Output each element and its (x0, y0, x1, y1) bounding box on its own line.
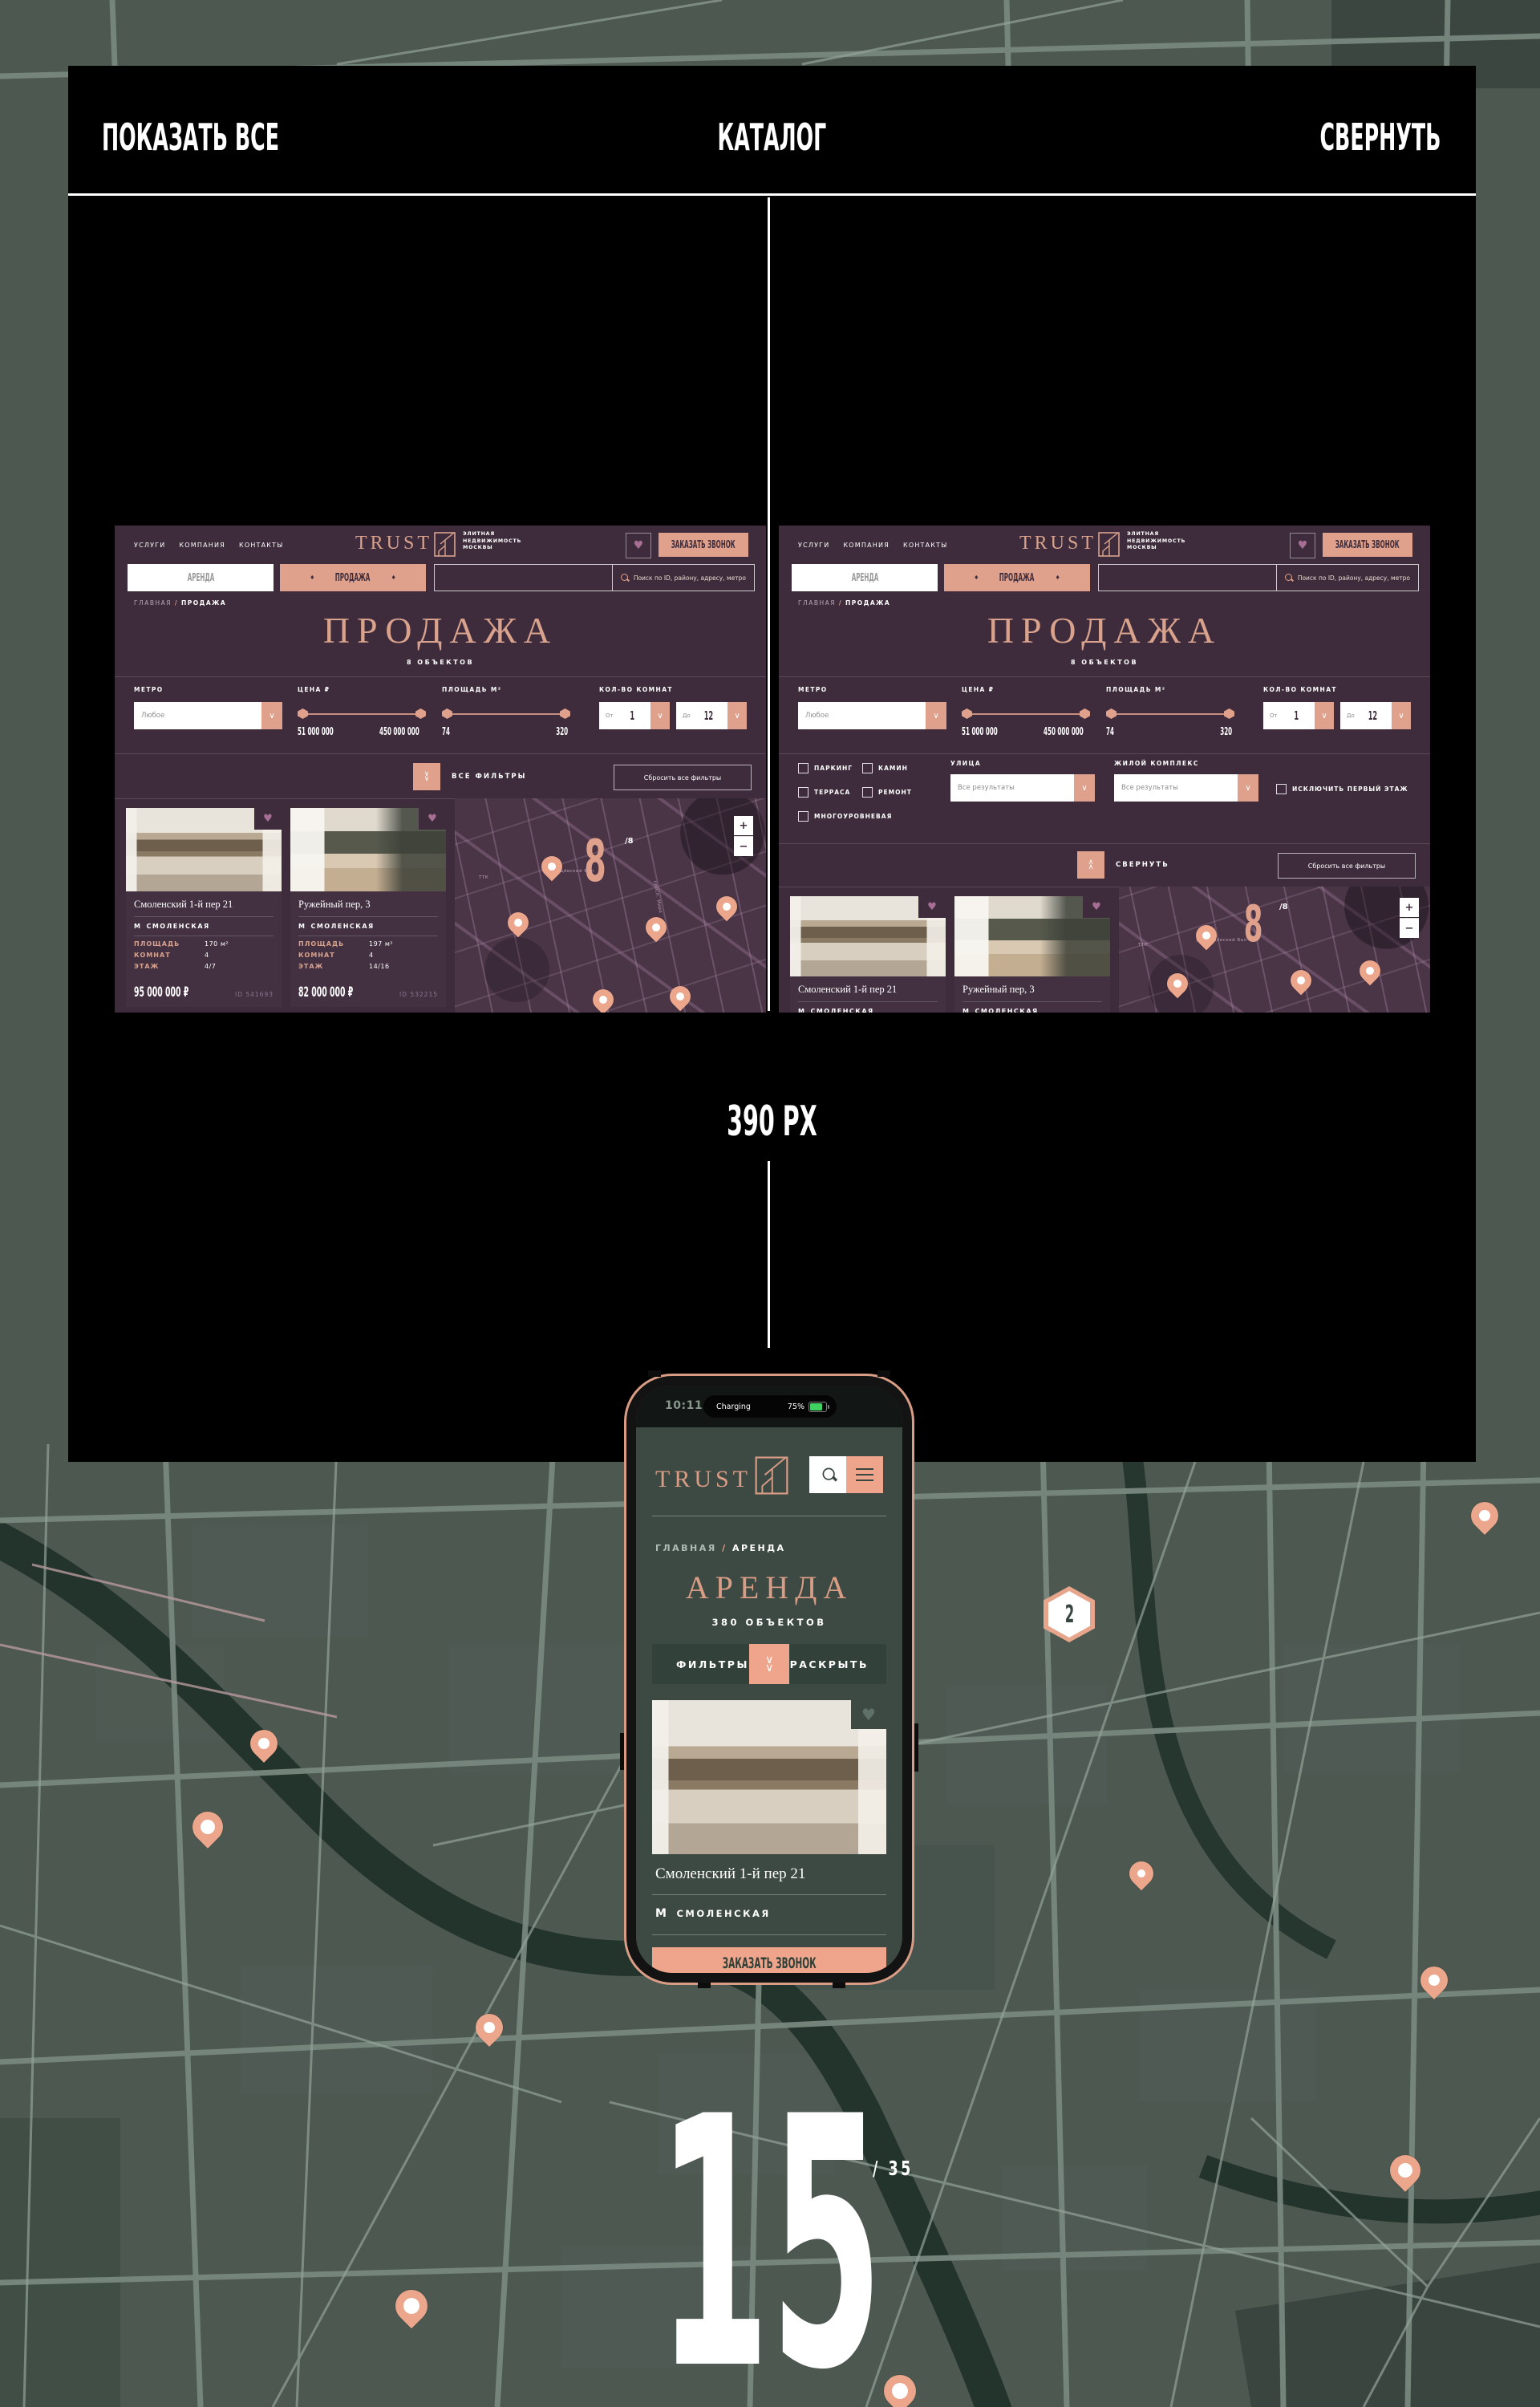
diamond-icon: ♦ (1056, 574, 1060, 581)
slider-handle[interactable] (1080, 708, 1090, 719)
rooms-from-stepper[interactable]: От 1 ∨ (1263, 702, 1334, 729)
desktop-screenshot-expanded-filters: УСЛУГИ КОМПАНИЯ КОНТАКТЫ TRUST ЭЛИТНАЯНЕ… (779, 526, 1430, 1013)
map-results-total: /8 (625, 837, 634, 846)
page-title: ПРОДАЖА (115, 609, 766, 651)
map-pin[interactable] (504, 908, 533, 938)
breadcrumb: ГЛАВНАЯ / ПРОДАЖА (134, 599, 226, 607)
property-photo: ♥ (954, 896, 1110, 976)
nav-contacts[interactable]: КОНТАКТЫ (903, 542, 948, 549)
map-pin[interactable] (712, 892, 742, 922)
property-id: ID 541693 (235, 991, 274, 998)
map-pin[interactable] (1192, 921, 1222, 951)
area-min: 74 (1106, 726, 1121, 738)
metro-select[interactable]: Любое ∨ (798, 702, 946, 729)
chevron-down-icon[interactable]: ∨ (650, 702, 670, 729)
cluster-count: 2 (1064, 1601, 1073, 1629)
property-card[interactable]: ♥ Ружейный пер, 3 М СМОЛЕНСКАЯ ПЛОЩАДЬ19… (290, 808, 446, 1007)
antenna-band (698, 1982, 711, 1988)
filter-area-label: ПЛОЩАДЬ М² (1106, 686, 1165, 693)
favorite-toggle[interactable]: ♥ (1083, 896, 1110, 918)
area-max: 320 (546, 726, 568, 738)
map-zoom-out-button[interactable]: − (734, 836, 753, 856)
breadcrumb-home[interactable]: ГЛАВНАЯ (798, 599, 836, 607)
checkbox-exclude-first-floor[interactable]: ИСКЛЮЧИТЬ ПЕРВЫЙ ЭТАЖ (1276, 784, 1408, 794)
metro-icon: М (134, 923, 141, 930)
chevron-down-icon[interactable]: ∨ (1315, 702, 1334, 729)
search-icon (621, 574, 629, 582)
expand-label[interactable]: РАСКРЫТЬ (790, 1658, 869, 1670)
map-pin[interactable] (589, 985, 618, 1013)
filter-rooms-label: КОЛ-ВО КОМНАТ (1263, 686, 1337, 693)
mobile-objects-count: 380 ОБЪЕКТОВ (636, 1617, 902, 1628)
search-placeholder: Поиск по ID, району, адресу, метро (1298, 574, 1418, 582)
map-pin[interactable] (1163, 969, 1193, 999)
price-max: 450 000 000 (1044, 726, 1116, 738)
complex-select[interactable]: Все результаты ∨ (1114, 774, 1258, 802)
center-divider-line (768, 197, 770, 1011)
metro-icon: М (798, 1008, 805, 1013)
nav-company[interactable]: КОМПАНИЯ (179, 542, 225, 549)
property-photo: ♥ (126, 808, 282, 891)
slide-number: 15 (0, 2104, 1540, 2387)
tab-arenda[interactable]: АРЕНДА (128, 564, 274, 591)
checkbox-terrace[interactable]: ТЕРРАСА (798, 787, 850, 798)
checkbox-renovation[interactable]: РЕМОНТ (862, 787, 912, 798)
property-photo: ♥ (290, 808, 446, 891)
breadcrumb-slash: / (175, 599, 178, 607)
map-zoom-in-button[interactable]: + (1400, 898, 1419, 917)
chevron-down-icon[interactable]: ∨ (1074, 774, 1095, 802)
tab-prodazha[interactable]: ♦ ПРОДАЖА ♦ (280, 564, 426, 591)
tab-prodazha[interactable]: ♦ ПРОДАЖА ♦ (944, 564, 1090, 591)
slider-handle[interactable] (560, 708, 570, 719)
nav-contacts[interactable]: КОНТАКТЫ (239, 542, 284, 549)
logo-mark-icon (755, 1456, 788, 1495)
reset-filters-button[interactable]: Сбросить все фильтры (614, 765, 752, 790)
area-min: 74 (442, 726, 456, 738)
metro-row: М СМОЛЕНСКАЯ (298, 923, 438, 930)
collapse-filters-button[interactable]: ∧∧ (1077, 851, 1104, 879)
search-text-area[interactable] (435, 565, 612, 591)
mobile-page-title: АРЕНДА (636, 1569, 902, 1606)
price-max: 450 000 000 (379, 726, 452, 738)
battery-percent: 75% (788, 1402, 804, 1411)
search-divider (1276, 565, 1277, 591)
phone-mockup: 10:11 Charging 75% TRUST ГЛАВНАЯ / АРЕН (624, 1374, 914, 1985)
breadcrumb-current: АРЕНДА (732, 1543, 786, 1553)
site-tagline: ЭЛИТНАЯНЕДВИЖИМОСТЬМОСКВЫ (1127, 531, 1185, 552)
price-range-slider[interactable] (962, 708, 1090, 719)
breadcrumb-current: ПРОДАЖА (181, 599, 226, 607)
property-title[interactable]: Ружейный пер, 3 (962, 984, 1102, 996)
search-input[interactable]: Поиск по ID, району, адресу, метро (434, 564, 755, 591)
map-results-count: 8 (1236, 899, 1270, 949)
tab-arenda[interactable]: АРЕНДА (792, 564, 938, 591)
chevron-down-icon[interactable]: ∨ (261, 702, 282, 729)
property-title[interactable]: Смоленский 1-й пер 21 (798, 984, 938, 996)
metro-icon: М (962, 1008, 970, 1013)
results-map[interactable]: ТТК ул. Сущёвский Вал 8 /8 + − (1119, 887, 1430, 1013)
property-photo: ♥ (790, 896, 946, 976)
filter-complex-label: ЖИЛОЙ КОМПЛЕКС (1114, 760, 1199, 767)
map-pin[interactable] (642, 913, 671, 943)
favorite-toggle[interactable]: ♥ (254, 808, 282, 830)
property-card[interactable]: ♥ Смоленский 1-й пер 21 М СМОЛЕНСКАЯ ПЛО… (126, 808, 282, 1007)
breadcrumb-slash: / (722, 1543, 727, 1553)
presentation-panel: ПОКАЗАТЬ ВСЕ КАТАЛОГ СВЕРНУТЬ 390 PX УСЛ… (68, 66, 1476, 1462)
mobile-breadcrumb: ГЛАВНАЯ / АРЕНДА (655, 1543, 786, 1553)
mobile-logo[interactable]: TRUST (655, 1466, 752, 1493)
slider-handle[interactable] (298, 708, 308, 719)
map-pin[interactable] (666, 982, 695, 1012)
map-pin[interactable] (1287, 966, 1316, 996)
slide-total: / 35 (873, 2157, 931, 2180)
slider-handle[interactable] (1106, 708, 1116, 719)
price-min: 51 000 000 (962, 726, 1027, 738)
battery-icon (808, 1402, 827, 1412)
chevron-down-icon[interactable]: ∨ (727, 702, 747, 729)
diamond-icon: ♦ (974, 574, 979, 581)
expand-filters-button[interactable]: ∨∨ (413, 763, 440, 790)
heart-icon: ♥ (428, 813, 437, 825)
search-placeholder: Поиск по ID, району, адресу, метро (634, 574, 754, 582)
rooms-to-stepper[interactable]: До 12 ∨ (1340, 702, 1411, 729)
heart-icon: ♥ (634, 539, 644, 552)
all-filters-label[interactable]: ВСЕ ФИЛЬТРЫ (452, 773, 526, 781)
map-pin[interactable] (537, 852, 567, 882)
favorites-button[interactable]: ♥ (626, 533, 651, 558)
breadcrumb-home[interactable]: ГЛАВНАЯ (655, 1543, 717, 1553)
expand-filters-button[interactable]: ∨∨ (749, 1644, 789, 1684)
area-range-slider[interactable] (442, 708, 570, 719)
metro-row: М СМОЛЕНСКАЯ (134, 923, 274, 930)
heart-icon: ♥ (1298, 539, 1308, 552)
search-text-area[interactable] (1099, 565, 1276, 591)
breadcrumb: ГЛАВНАЯ / ПРОДАЖА (798, 599, 890, 607)
metro-row: М СМОЛЕНСКАЯ (962, 1008, 1102, 1013)
breadcrumb-current: ПРОДАЖА (845, 599, 890, 607)
collapse-filters-label[interactable]: СВЕРНУТЬ (1116, 861, 1169, 869)
metro-row: М СМОЛЕНСКАЯ (798, 1008, 938, 1013)
heart-icon: ♥ (861, 1705, 876, 1724)
rooms-to-stepper[interactable]: До 12 ∨ (676, 702, 747, 729)
divider (652, 1934, 886, 1935)
objects-count: 8 ОБЪЕКТОВ (779, 659, 1430, 666)
page: 2 ПОКАЗАТЬ ВСЕ КАТАЛОГ СВЕРНУТЬ 390 PX У… (0, 0, 1540, 2407)
mobile-call-button[interactable]: ЗАКАЗАТЬ ЗВОНОК (652, 1947, 886, 1973)
request-call-button[interactable]: ЗАКАЗАТЬ ЗВОНОК (1323, 533, 1412, 557)
map-results-total: /8 (1279, 903, 1288, 911)
property-id: ID 532215 (399, 991, 438, 998)
filter-area-label: ПЛОЩАДЬ М² (442, 686, 501, 693)
site-nav: УСЛУГИ КОМПАНИЯ КОНТАКТЫ (134, 542, 298, 549)
mobile-property-photo[interactable]: ♥ (652, 1700, 886, 1854)
checkbox-multilevel[interactable]: МНОГОУРОВНЕВАЯ (798, 811, 892, 822)
hamburger-icon (856, 1474, 873, 1476)
header-divider (68, 193, 1476, 196)
checkbox-fireplace[interactable]: КАМИН (862, 763, 908, 773)
map-results-count: 8 (575, 832, 615, 890)
search-icon (823, 1468, 837, 1482)
dynamic-island: Charging 75% (703, 1395, 837, 1418)
collapse-button[interactable]: СВЕРНУТЬ (1221, 116, 1441, 159)
price-min: 51 000 000 (298, 726, 363, 738)
divider (652, 1894, 886, 1895)
price-range-slider[interactable] (298, 708, 426, 719)
metro-icon: М (298, 923, 306, 930)
filter-metro-label: МЕТРО (798, 686, 828, 693)
site-nav: УСЛУГИ КОМПАНИЯ КОНТАКТЫ (798, 542, 962, 549)
property-card[interactable]: ♥ Смоленский 1-й пер 21 М СМОЛЕНСКАЯ (790, 896, 946, 1013)
nav-services[interactable]: УСЛУГИ (798, 542, 829, 549)
area-max: 320 (1210, 726, 1232, 738)
map-zoom-out-button[interactable]: − (1400, 918, 1419, 938)
request-call-button[interactable]: ЗАКАЗАТЬ ЗВОНОК (659, 533, 748, 557)
area-range-slider[interactable] (1106, 708, 1234, 719)
heart-icon: ♥ (927, 901, 937, 913)
favorites-button[interactable]: ♥ (1290, 533, 1315, 558)
search-icon (1285, 574, 1293, 582)
diamond-icon: ♦ (310, 574, 314, 581)
breadcrumb-slash: / (839, 599, 842, 607)
width-marker-line (768, 1161, 770, 1348)
metro-icon: М (655, 1907, 668, 1920)
phone-screen: 10:11 Charging 75% TRUST ГЛАВНАЯ / АРЕН (636, 1386, 902, 1973)
slider-handle[interactable] (962, 708, 972, 719)
objects-count: 8 ОБЪЕКТОВ (115, 659, 766, 666)
slider-handle[interactable] (442, 708, 452, 719)
favorite-toggle[interactable]: ♥ (918, 896, 946, 918)
breadcrumb-home[interactable]: ГЛАВНАЯ (134, 599, 172, 607)
heart-icon: ♥ (263, 813, 273, 825)
map-zoom-in-button[interactable]: + (734, 816, 753, 835)
mobile-menu-button[interactable] (846, 1456, 883, 1493)
desktop-screenshot-collapsed-filters: УСЛУГИ КОМПАНИЯ КОНТАКТЫ TRUST ЭЛИТНАЯНЕ… (115, 526, 766, 1013)
slider-handle[interactable] (1224, 708, 1234, 719)
antenna-band (648, 1370, 661, 1377)
filter-metro-label: МЕТРО (134, 686, 164, 693)
rooms-from-stepper[interactable]: От 1 ∨ (599, 702, 670, 729)
site-tagline: ЭЛИТНАЯНЕДВИЖИМОСТЬМОСКВЫ (463, 531, 521, 552)
property-title[interactable]: Ружейный пер, 3 (298, 899, 438, 911)
search-input[interactable]: Поиск по ID, району, адресу, метро (1098, 564, 1419, 591)
favorite-toggle[interactable]: ♥ (419, 808, 446, 830)
filter-street-label: УЛИЦА (950, 760, 981, 767)
diamond-icon: ♦ (391, 574, 396, 581)
filters-label[interactable]: ФИЛЬТРЫ (676, 1658, 749, 1670)
property-price: 82 000 000 ₽ (298, 984, 398, 1001)
property-card[interactable]: ♥ Ружейный пер, 3 М СМОЛЕНСКАЯ (954, 896, 1110, 1013)
mobile-search-button[interactable] (809, 1456, 846, 1493)
viewport-width-label: 390 PX (68, 1098, 1476, 1146)
slider-handle[interactable] (415, 708, 426, 719)
filter-rooms-label: КОЛ-ВО КОМНАТ (599, 686, 673, 693)
nav-services[interactable]: УСЛУГИ (134, 542, 165, 549)
reset-filters-button[interactable]: Сбросить все фильтры (1278, 853, 1416, 879)
chevron-down-icon[interactable]: ∨ (1238, 774, 1258, 802)
filter-price-label: ЦЕНА ₽ (298, 686, 330, 693)
power-button[interactable] (914, 1723, 918, 1772)
site-logo[interactable]: TRUST (1019, 533, 1096, 554)
map-pin[interactable] (1356, 956, 1385, 986)
antenna-band (877, 1370, 890, 1377)
nav-company[interactable]: КОМПАНИЯ (843, 542, 890, 549)
status-time: 10:11 (665, 1399, 703, 1412)
antenna-band (833, 1982, 845, 1988)
checkbox-parking[interactable]: ПАРКИНГ (798, 763, 853, 773)
search-divider (612, 565, 613, 591)
island-status: Charging (716, 1402, 788, 1411)
logo-mark-icon (1098, 532, 1120, 557)
mobile-property-title[interactable]: Смоленский 1-й пер 21 (655, 1865, 805, 1883)
results-map[interactable]: ТТК ул. Сущёвский Вал просп. Мира 8 /8 +… (455, 798, 766, 1013)
divider (652, 1516, 886, 1516)
street-select[interactable]: Все результаты ∨ (950, 774, 1095, 802)
volume-button[interactable] (620, 1733, 624, 1770)
mobile-filter-bar: ФИЛЬТРЫ ∨∨ РАСКРЫТЬ (652, 1644, 886, 1684)
property-title[interactable]: Смоленский 1-й пер 21 (134, 899, 274, 911)
chevron-down-icon[interactable]: ∨ (926, 702, 946, 729)
metro-select[interactable]: Любое ∨ (134, 702, 282, 729)
favorite-toggle[interactable]: ♥ (851, 1700, 886, 1729)
filter-price-label: ЦЕНА ₽ (962, 686, 994, 693)
site-logo[interactable]: TRUST (355, 533, 432, 554)
mobile-metro-row: М СМОЛЕНСКАЯ (655, 1907, 771, 1920)
chevron-down-icon[interactable]: ∨ (1392, 702, 1411, 729)
logo-mark-icon (434, 532, 456, 557)
page-title: ПРОДАЖА (779, 609, 1430, 651)
property-price: 95 000 000 ₽ (134, 984, 233, 1001)
heart-icon: ♥ (1092, 901, 1101, 913)
